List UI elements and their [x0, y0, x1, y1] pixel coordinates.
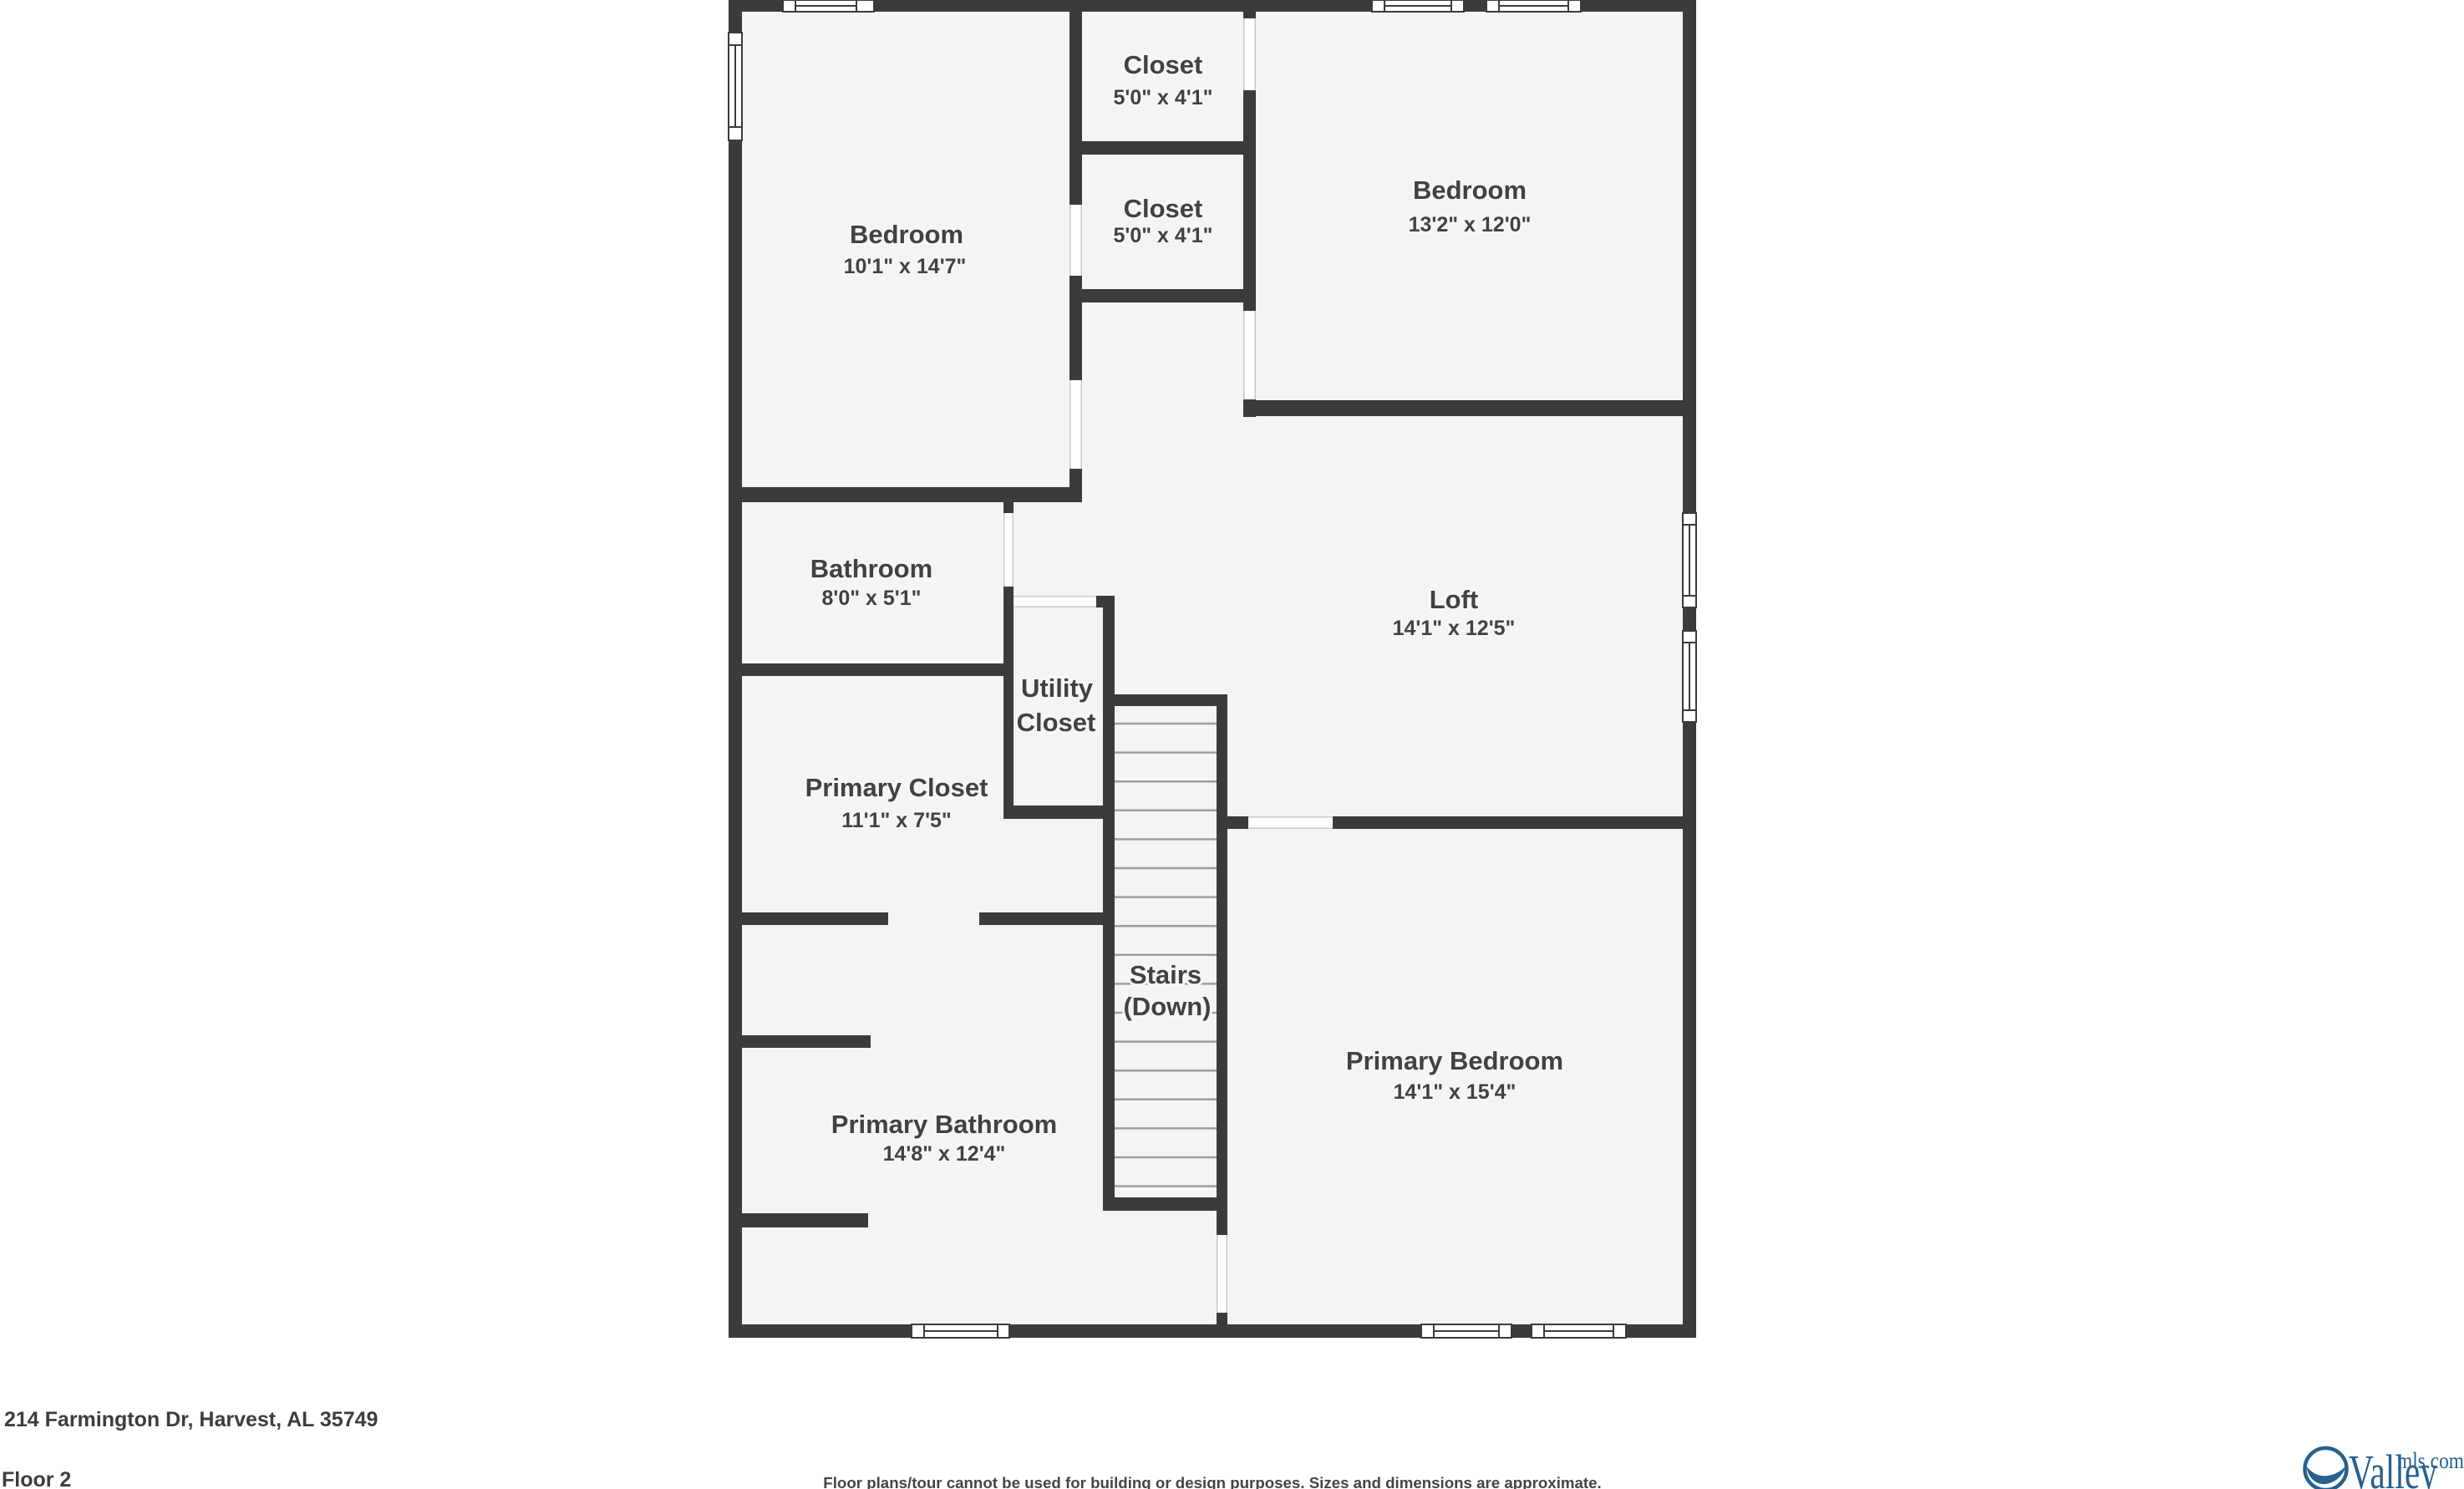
svg-text:Loft: Loft	[1430, 585, 1479, 614]
svg-text:Closet: Closet	[1124, 50, 1203, 79]
svg-text:11'1" x 7'5": 11'1" x 7'5"	[841, 809, 952, 832]
svg-text:214 Farmington Dr, Harvest, AL: 214 Farmington Dr, Harvest, AL 35749	[4, 1408, 378, 1431]
svg-text:Closet: Closet	[1017, 708, 1096, 737]
svg-text:14'1" x 15'4": 14'1" x 15'4"	[1394, 1080, 1517, 1104]
svg-text:5'0" x 4'1": 5'0" x 4'1"	[1113, 224, 1212, 247]
svg-text:(Down): (Down)	[1123, 992, 1211, 1021]
svg-text:Primary Bathroom: Primary Bathroom	[831, 1110, 1057, 1139]
svg-text:Floor 2: Floor 2	[2, 1468, 71, 1489]
svg-text:Primary Closet: Primary Closet	[805, 773, 988, 802]
svg-text:14'8" x 12'4": 14'8" x 12'4"	[883, 1142, 1006, 1166]
svg-text:8'0" x 5'1": 8'0" x 5'1"	[821, 587, 921, 610]
svg-text:Primary Bedroom: Primary Bedroom	[1346, 1046, 1563, 1075]
svg-text:Bathroom: Bathroom	[810, 554, 932, 583]
svg-text:13'2" x 12'0": 13'2" x 12'0"	[1409, 213, 1532, 236]
svg-text:Closet: Closet	[1124, 194, 1203, 223]
svg-text:Bedroom: Bedroom	[850, 220, 963, 249]
svg-text:Bedroom: Bedroom	[1413, 175, 1527, 205]
svg-text:5'0" x 4'1": 5'0" x 4'1"	[1113, 86, 1212, 109]
svg-text:Utility: Utility	[1021, 673, 1094, 703]
svg-text:Floor plans/tour cannot be use: Floor plans/tour cannot be used for buil…	[823, 1474, 1601, 1489]
svg-text:10'1" x 14'7": 10'1" x 14'7"	[844, 255, 967, 278]
svg-text:mls.com: mls.com	[2397, 1448, 2464, 1473]
svg-text:14'1" x 12'5": 14'1" x 12'5"	[1393, 617, 1516, 640]
svg-text:Stairs: Stairs	[1130, 960, 1202, 989]
